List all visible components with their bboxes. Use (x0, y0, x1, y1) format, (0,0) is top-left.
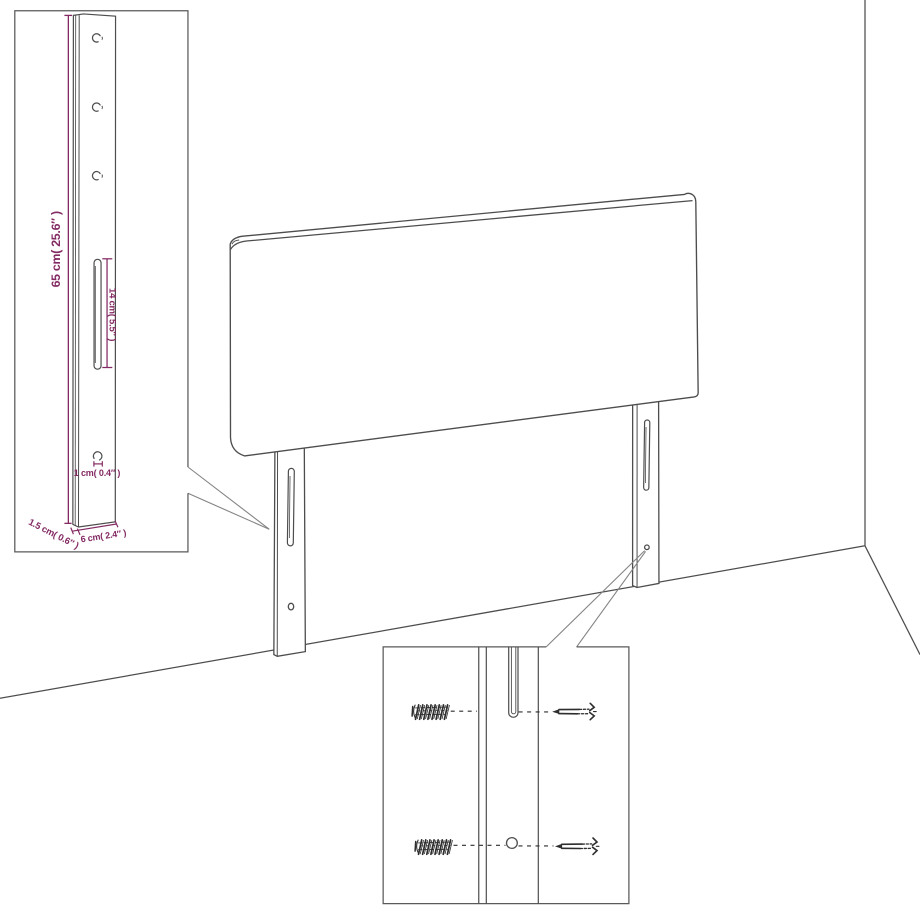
svg-text:65 cm( 25.6″ ): 65 cm( 25.6″ ) (49, 211, 63, 287)
svg-text:14 cm( 5.5″ ): 14 cm( 5.5″ ) (106, 288, 117, 341)
svg-text:1 cm( 0.4″ ): 1 cm( 0.4″ ) (74, 468, 121, 478)
